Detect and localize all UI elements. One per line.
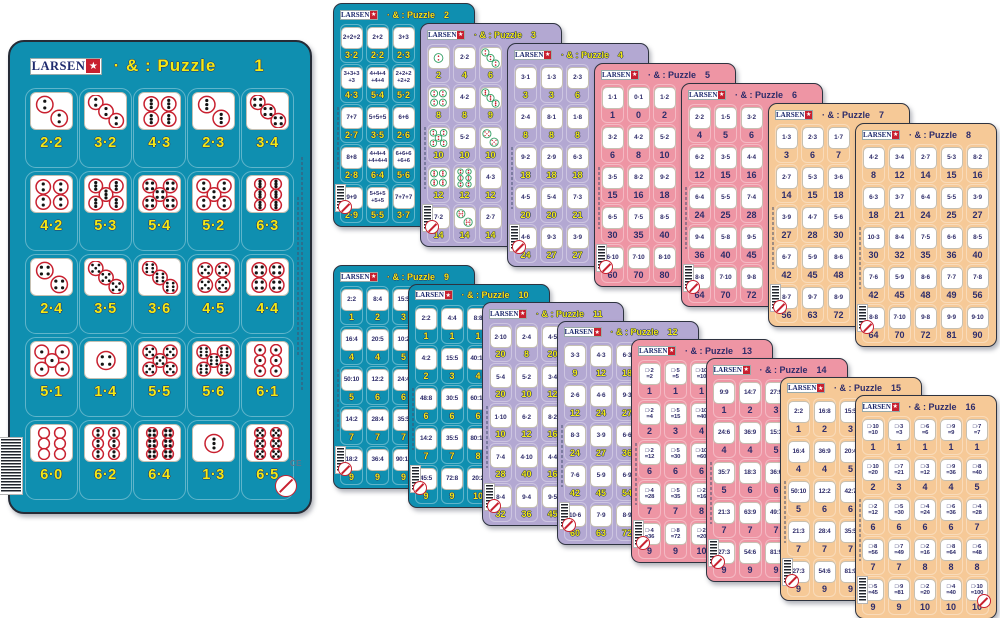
answer-label: 16 [547, 468, 557, 481]
answer-label: 3 [523, 89, 528, 102]
larsen-logo: LARSEN★ [775, 110, 813, 120]
expression-line: 8·2 [634, 174, 643, 181]
expression-line: 6·7 [782, 254, 791, 261]
dice-icon [195, 178, 233, 211]
card-title: · & : Puzzle [900, 402, 966, 412]
puzzle-cell: □·7=71 [966, 416, 989, 455]
puzzle-cell: 9·436 [515, 483, 538, 522]
answer-label: 45 [746, 249, 756, 262]
card-title: · & : Puzzle [465, 30, 531, 40]
expression-line: 9·7 [808, 294, 817, 301]
answer-label: 21 [572, 209, 582, 222]
answer-label: 4 [462, 69, 467, 82]
answer-label: 6 [870, 521, 875, 534]
expression-tile: 9·4 [689, 227, 711, 249]
expression-line: 54:6 [819, 568, 831, 575]
expression-tile: 4·7 [802, 207, 824, 229]
puzzle-cell: 2:21 [787, 398, 810, 437]
answer-label: 72 [746, 289, 756, 302]
expression-tile: 7·10 [715, 267, 737, 289]
puzzle-cell: 2+2+23·2 [340, 24, 363, 63]
answer-label: 6 [673, 465, 678, 478]
expression-line: =6 [922, 430, 928, 437]
answer-label: 18 [520, 169, 530, 182]
expression-tile: 2·3 [802, 127, 824, 149]
expression-line: =16 [920, 550, 929, 557]
expression-line: 2+2+2 [396, 71, 412, 78]
puzzle-cell: 18:36 [739, 459, 762, 498]
answer-label: 9 [488, 109, 493, 122]
expression-line: 4·2 [869, 154, 878, 161]
puzzle-cell: 3·618 [827, 164, 850, 203]
expression-line: 2·9 [547, 154, 556, 161]
expression-tile: □·5=15 [665, 403, 687, 425]
puzzle-cell: 63:97 [739, 499, 762, 538]
card-header: LARSEN★· & : Puzzle13 [632, 344, 772, 357]
answer-label: 30 [833, 229, 843, 242]
answer-label: 7 [449, 450, 454, 463]
answer-label: 4 [349, 351, 354, 364]
dice-tile [480, 47, 502, 69]
expression-tile: □·4=28 [639, 483, 661, 505]
expression-line: 3·4 [895, 154, 904, 161]
brand-name: LARSEN [565, 328, 593, 336]
card-title: · & : Puzzle [676, 346, 742, 356]
answer-label: 5·5 [148, 383, 170, 401]
expression-line: □·8 [973, 464, 981, 471]
answer-label: 18 [833, 189, 843, 202]
answer-label: 5 [974, 481, 979, 494]
expression-line: 9·10 [972, 314, 984, 321]
answer-label: 1 [475, 330, 480, 343]
expression-line: 1·7 [834, 134, 843, 141]
expression-line: 50:10 [791, 488, 806, 495]
answer-label: 70 [633, 269, 643, 282]
puzzle-cell: 2·24 [453, 44, 476, 83]
puzzle-cell: □·6=366 [940, 496, 963, 535]
expression-line: 4·3 [597, 352, 606, 359]
age-warning-icon [773, 300, 787, 314]
expression-tile: □·4=24 [914, 499, 936, 521]
answer-label: 6 [747, 484, 752, 497]
puzzle-cell: 4·5 [187, 254, 240, 334]
answer-label: 12 [459, 189, 469, 202]
dice-icon [249, 344, 287, 377]
dice-tile [138, 258, 181, 296]
answer-label: 35 [920, 249, 930, 262]
expression-line: 1·3 [782, 134, 791, 141]
answer-label: 6 [896, 521, 901, 534]
expression-line: 3·5 [721, 154, 730, 161]
answer-label: 9 [848, 583, 853, 596]
puzzle-cell: 16:44 [787, 438, 810, 477]
expression-tile: 8·5 [654, 207, 676, 229]
puzzle-cell: 9·436 [688, 224, 711, 263]
expression-line: 7·4 [747, 194, 756, 201]
expression-line: 2·4 [522, 334, 531, 341]
expression-line: =20 [868, 470, 877, 477]
answer-label: 4 [796, 463, 801, 476]
answer-label: 2·7 [345, 129, 358, 142]
puzzle-cell: 4·2 [25, 171, 78, 251]
expression-tile: □·8=40 [966, 459, 988, 481]
puzzle-cell: 9·218 [653, 164, 676, 203]
expression-tile: 7·10 [628, 247, 650, 269]
expression-tile: 4·3 [480, 167, 502, 189]
puzzle-cell: 6·212 [688, 144, 711, 183]
expression-tile: □·8=64 [940, 539, 962, 561]
answer-label: 9 [822, 583, 827, 596]
answer-label: 18 [546, 169, 556, 182]
answer-label: 8 [523, 129, 528, 142]
answer-label: 5·6 [202, 383, 224, 401]
expression-line: =45 [868, 590, 877, 597]
card-header: LARSEN★· & : Puzzle4 [508, 48, 648, 61]
expression-tile: 7·3 [567, 187, 589, 209]
age-warning-icon [860, 320, 874, 334]
expression-tile: 2:2 [788, 401, 810, 423]
card-header: LARSEN★· & : Puzzle10 [409, 289, 549, 302]
puzzle-cell: 14 [453, 204, 476, 243]
expression-tile: 2:2 [341, 289, 363, 311]
expression-line: 4+4+4 [370, 71, 386, 78]
expression-tile: 6·2 [689, 147, 711, 169]
puzzle-collection: LARSEN★· & : Puzzle12·23·24·32·33·44·25·… [0, 0, 1000, 618]
expression-line: 4:2 [422, 355, 431, 362]
puzzle-cell: 2·918 [540, 144, 563, 183]
answer-label: 9 [401, 471, 406, 484]
puzzle-cell: 10 [427, 124, 450, 163]
expression-tile: 3·9 [776, 207, 798, 229]
answer-label: 1 [349, 311, 354, 324]
answer-label: 5 [773, 444, 778, 457]
expression-tile: 36:9 [814, 441, 836, 463]
answer-label: 6 [699, 465, 704, 478]
larsen-logo: LARSEN★ [30, 58, 102, 75]
dice-tile [480, 87, 502, 109]
expression-line: 2·10 [495, 334, 507, 341]
answer-label: 7 [822, 543, 827, 556]
expression-line: =20 [697, 534, 706, 541]
answer-label: 28 [807, 229, 817, 242]
answer-label: 15 [607, 189, 617, 202]
answer-label: 36 [521, 508, 531, 521]
expression-line: 8·10 [659, 254, 671, 261]
expression-line: 6·4 [921, 194, 930, 201]
answer-label: 12 [596, 367, 606, 380]
expression-line: 7+7 [346, 114, 356, 121]
answer-label: 1 [796, 423, 801, 436]
puzzle-cell: 35:57 [441, 425, 464, 464]
card-number: 12 [668, 327, 692, 337]
puzzle-cell: 5·420 [540, 184, 563, 223]
expression-tile: 9·2 [515, 147, 537, 169]
brand-name: LARSEN [639, 347, 667, 355]
brand-name: LARSEN [602, 71, 630, 79]
expression-line: □·2 [921, 544, 929, 551]
expression-tile: 8·1 [541, 107, 563, 129]
expression-line: □·2 [645, 448, 653, 455]
expression-line: □·9 [947, 424, 955, 431]
expression-tile: 7·9 [590, 505, 612, 527]
puzzle-cell: 36:94 [739, 419, 762, 458]
fine-print [772, 207, 774, 269]
expression-tile: □·3=12 [914, 459, 936, 481]
puzzle-cell: □·6=488 [966, 536, 989, 575]
dice-tile [428, 127, 450, 149]
expression-tile: 5·5 [941, 187, 963, 209]
ce-mark: CE [290, 459, 302, 468]
puzzle-cell: 6+62·6 [392, 104, 415, 143]
answer-label: 6·4 [148, 466, 170, 484]
puzzle-cell: 1·4 [79, 337, 132, 417]
dice-icon [249, 178, 287, 211]
expression-tile: 2+2+2+2+2 [393, 67, 415, 89]
answer-label: 5·5 [371, 209, 384, 222]
dice-tile [428, 87, 450, 109]
puzzle-cell: 21:37 [713, 499, 736, 538]
expression-line: 8·1 [547, 114, 556, 121]
answer-label: 1 [948, 441, 953, 454]
expression-line: □·7 [895, 464, 903, 471]
expression-line: 4·5 [548, 334, 557, 341]
fine-print [710, 462, 712, 524]
expression-tile: 14:2 [341, 409, 363, 431]
answer-label: 45 [807, 269, 817, 282]
answer-label: 6·0 [40, 466, 62, 484]
puzzle-cell: 36:94 [813, 438, 836, 477]
expression-line: 9·3 [547, 234, 556, 241]
puzzle-cell: □·5=51 [664, 360, 687, 399]
expression-line: 7·6 [571, 472, 580, 479]
expression-line: 5·9 [597, 472, 606, 479]
age-warning-icon [338, 200, 352, 214]
puzzle-cell: 1·33 [540, 64, 563, 103]
puzzle-cell: 8·540 [653, 204, 676, 243]
expression-line: □·2 [869, 504, 877, 511]
puzzle-cell: 8·324 [564, 422, 587, 461]
expression-line: +2+2 [397, 78, 410, 85]
dice-tile [84, 424, 127, 462]
card-number: 14 [817, 365, 841, 375]
expression-line: □·5 [869, 584, 877, 591]
answer-label: 10 [433, 149, 443, 162]
puzzle-cell: 20:54 [366, 326, 389, 365]
puzzle-cell: 2·24 [688, 104, 711, 143]
puzzle-cell: 9·327 [540, 224, 563, 263]
answer-label: 56 [972, 289, 982, 302]
puzzle-cell: 3·927 [775, 204, 798, 243]
expression-tile: 0·1 [628, 87, 650, 109]
expression-line: 18:3 [744, 469, 756, 476]
puzzle-cell: 7·535 [627, 204, 650, 243]
answer-label: 16 [633, 189, 643, 202]
expression-tile: 8·2 [628, 167, 650, 189]
expression-line: 14:2 [420, 435, 432, 442]
expression-tile: 4·2 [628, 127, 650, 149]
expression-line: 63:9 [744, 509, 756, 516]
fine-print [511, 147, 513, 209]
answer-label: 8 [524, 348, 529, 361]
expression-tile: 8·6 [828, 247, 850, 269]
card-header: LARSEN★· & : Puzzle7 [769, 108, 909, 121]
answer-label: 12 [547, 388, 557, 401]
answer-label: 15 [720, 169, 730, 182]
answer-label: 2·2 [40, 134, 62, 152]
expression-line: =40 [946, 590, 955, 597]
fine-print [301, 157, 303, 392]
larsen-logo: LARSEN★ [688, 90, 726, 100]
expression-tile: 5·2 [654, 127, 676, 149]
expression-tile: 5·4 [541, 187, 563, 209]
expression-line: 14:2 [346, 416, 358, 423]
brand-name: LARSEN [776, 111, 804, 119]
expression-tile: 2:2 [415, 308, 437, 330]
fine-print [635, 443, 637, 505]
expression-line: 3+3+3 [344, 71, 360, 78]
brand-name: LARSEN [714, 366, 742, 374]
puzzle-cell: 5·525 [714, 184, 737, 223]
star-icon: ★ [892, 131, 899, 139]
expression-tile: 1·7 [828, 127, 850, 149]
answer-label: 15 [946, 169, 956, 182]
puzzle-cell: 4:22 [415, 345, 438, 384]
puzzle-cell: 5·420 [489, 363, 512, 402]
expression-tile: 3·5 [715, 147, 737, 169]
dice-icon [249, 261, 287, 294]
puzzle-cell: 2·714 [914, 144, 937, 183]
expression-tile: 30:5 [441, 388, 463, 410]
expression-line: 5·4 [547, 194, 556, 201]
expression-line: 7·4 [496, 454, 505, 461]
expression-tile: 4:2 [415, 348, 437, 370]
answer-label: 20 [547, 348, 557, 361]
puzzle-cell: 24:64 [713, 419, 736, 458]
puzzle-cell: 21:37 [787, 518, 810, 557]
answer-label: 70 [720, 289, 730, 302]
expression-tile: 54:6 [739, 542, 761, 564]
expression-tile: 10·3 [863, 227, 885, 249]
brand-name: LARSEN [416, 291, 444, 299]
answer-label: 1·3 [202, 466, 224, 484]
expression-line: 2·2 [460, 54, 469, 61]
expression-line: □·8 [947, 544, 955, 551]
star-icon: ★ [718, 91, 725, 99]
expression-line: 1·5 [721, 114, 730, 121]
dice-icon [195, 261, 233, 294]
fine-print [297, 197, 299, 357]
puzzle-cell: 8·18 [540, 104, 563, 143]
card-number: 8 [966, 130, 990, 140]
answer-label: 5·4 [371, 89, 384, 102]
answer-label: 10 [696, 545, 706, 558]
answer-label: 1 [870, 441, 875, 454]
dice-icon [481, 88, 500, 108]
expression-tile: 20:5 [367, 329, 389, 351]
fine-print [685, 187, 687, 249]
answer-label: 24 [596, 407, 606, 420]
expression-line: +3 [348, 78, 354, 85]
puzzle-cell: 2·4 [25, 254, 78, 334]
expression-line: 6·6 [947, 234, 956, 241]
answer-label: 18 [868, 209, 878, 222]
expression-line: 9·2 [521, 154, 530, 161]
expression-line: 9·5 [548, 494, 557, 501]
answer-label: 42 [570, 487, 580, 500]
answer-label: 6·2 [94, 466, 116, 484]
card-title: · & : Puzzle [527, 309, 593, 319]
puzzle-cell: 48:86 [415, 385, 438, 424]
puzzle-cell: 6·1 [241, 337, 294, 417]
dice-icon [87, 95, 125, 128]
dice-tile [428, 47, 450, 69]
dice-icon [249, 95, 287, 128]
puzzle-cell: 3·13 [514, 64, 537, 103]
expression-tile: 1·3 [776, 127, 798, 149]
expression-line: 9·9 [947, 314, 956, 321]
card-title: · & : Puzzle [102, 56, 228, 76]
card-number: 9 [444, 272, 468, 282]
expression-line: 5·4 [496, 374, 505, 381]
expression-tile: □·5=35 [665, 483, 687, 505]
expression-line: □·3 [895, 424, 903, 431]
answer-label: 6 [822, 503, 827, 516]
expression-tile: 5·8 [715, 227, 737, 249]
expression-line: 1·2 [660, 94, 669, 101]
answer-label: 2·2 [371, 49, 384, 62]
expression-line: 3·9 [597, 432, 606, 439]
expression-tile: □·7=21 [888, 459, 910, 481]
dice-tile [138, 92, 181, 130]
expression-line: 4·4 [747, 154, 756, 161]
answer-label: 2·6 [397, 129, 410, 142]
expression-tile: 16:4 [788, 441, 810, 463]
answer-label: 0 [636, 109, 641, 122]
puzzle-cell: □·4=4010 [940, 576, 963, 615]
expression-tile: 3·6 [828, 167, 850, 189]
answer-label: 9 [449, 490, 454, 503]
puzzle-cell: 12 [453, 164, 476, 203]
expression-tile: 4·3 [590, 345, 612, 367]
expression-tile: 16:8 [814, 401, 836, 423]
answer-label: 3·5 [371, 129, 384, 142]
expression-line: 36:4 [372, 456, 384, 463]
expression-tile: □·5=30 [665, 443, 687, 465]
expression-line: 5·9 [808, 254, 817, 261]
expression-line: 2·3 [573, 74, 582, 81]
puzzle-cell: 8·540 [966, 224, 989, 263]
expression-line: 5·2 [460, 134, 469, 141]
answer-label: 5·1 [40, 383, 62, 401]
expression-line: 21:3 [793, 528, 805, 535]
tile-grid: 2·23·24·32·33·44·25·35·45·26·32·43·53·64… [25, 88, 294, 500]
answer-label: 1 [699, 385, 704, 398]
answer-label: 28 [746, 209, 756, 222]
answer-label: 42 [868, 289, 878, 302]
expression-tile: □·2=16 [914, 539, 936, 561]
expression-tile: 50:10 [788, 481, 810, 503]
answer-label: 16 [746, 169, 756, 182]
brand-name: LARSEN [515, 51, 543, 59]
brand-name: LARSEN [32, 59, 86, 74]
card-number: 2 [444, 10, 468, 20]
expression-line: 5·8 [721, 234, 730, 241]
expression-line: 4·10 [521, 454, 533, 461]
brand-name: LARSEN [490, 310, 518, 318]
puzzle-cell: 5·945 [590, 462, 613, 501]
expression-line: =5 [672, 374, 678, 381]
answer-label: 3·4 [256, 134, 278, 152]
